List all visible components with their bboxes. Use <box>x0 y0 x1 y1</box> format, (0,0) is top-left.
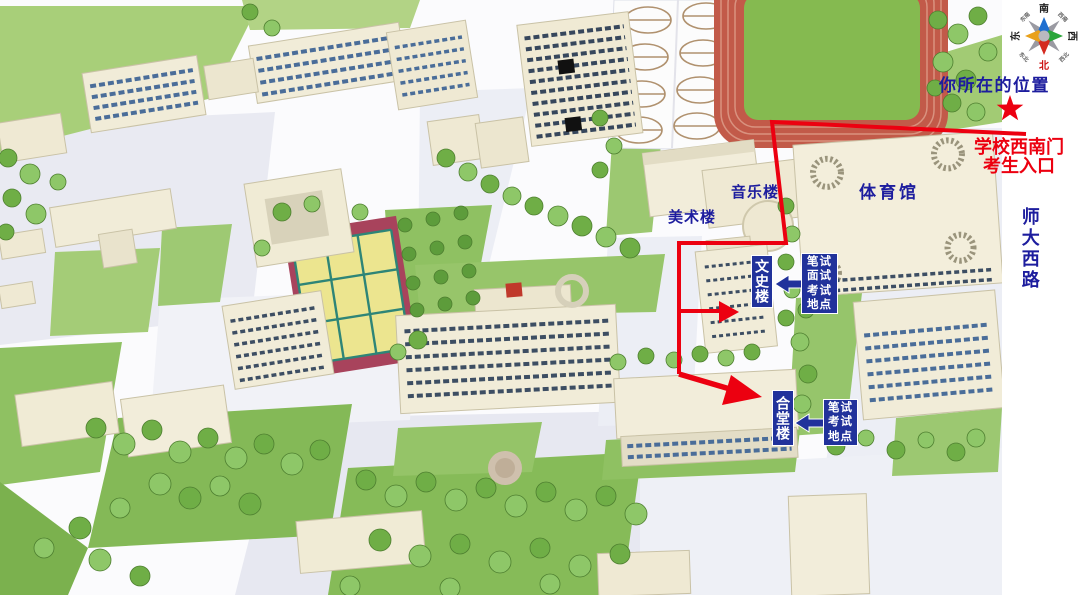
exam-box-line: 考试 <box>807 284 832 299</box>
compass-east-label: 东 <box>1009 31 1022 41</box>
compass-west-label: 西 <box>1066 31 1078 41</box>
exam-box-line: 考试 <box>828 415 853 430</box>
label-music-building: 音乐楼 <box>731 185 779 202</box>
exam-box-line: 面试 <box>807 269 832 284</box>
campus-map-illustration <box>0 0 1080 595</box>
exam-box-line: 地点 <box>807 298 832 313</box>
compass-rose-icon: 南 西 东 北 东南 西南 东北 西北 <box>1008 0 1080 72</box>
exam-box-line: 地点 <box>828 430 853 445</box>
label-road: 师大西路 <box>1019 207 1039 302</box>
compass-south-label: 南 <box>1039 2 1049 15</box>
label-gymnasium: 体育馆 <box>859 184 919 203</box>
your-location-label: 你所在的位置 <box>939 77 1050 96</box>
label-wenshi-building: 文史楼 <box>751 255 773 308</box>
gate-entrance-label: 学校西南门 考生入口 <box>960 138 1078 176</box>
gate-label-line1: 学校西南门 <box>960 138 1078 157</box>
sports-field <box>714 0 948 148</box>
label-art-building: 美术楼 <box>668 210 716 227</box>
campus-map-page: 南 西 东 北 东南 西南 东北 西北 你所在的位置 学校西南门 考生入口 体育… <box>0 0 1080 595</box>
compass-north-label: 北 <box>1039 59 1049 72</box>
gate-label-line2: 考生入口 <box>960 157 1078 176</box>
exam-box-written-interview: 笔试 面试 考试 地点 <box>801 253 838 314</box>
exam-box-line: 笔试 <box>828 401 853 416</box>
exam-box-written: 笔试 考试 地点 <box>823 399 858 446</box>
label-hetang-building: 合堂楼 <box>772 390 794 446</box>
exam-box-line: 笔试 <box>807 255 832 270</box>
